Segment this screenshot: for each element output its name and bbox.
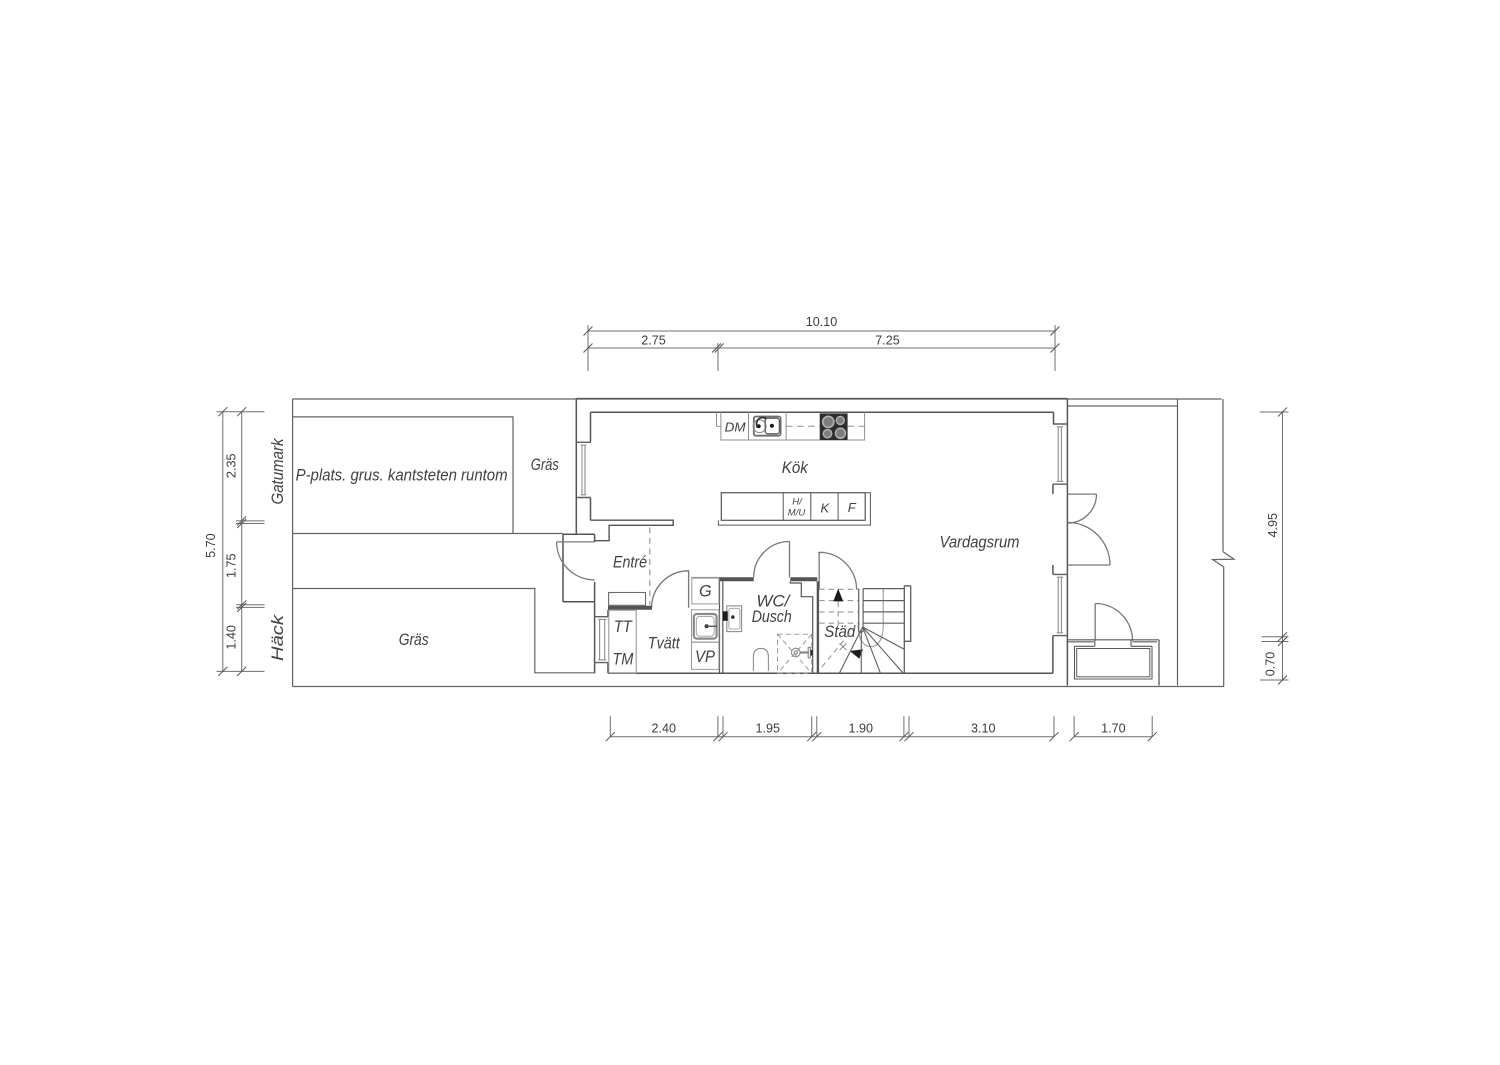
- svg-text:1.90: 1.90: [849, 722, 874, 736]
- svg-text:Gatumark: Gatumark: [269, 438, 287, 505]
- svg-text:K: K: [820, 500, 830, 515]
- svg-text:H/: H/: [792, 497, 803, 508]
- svg-text:DM: DM: [725, 420, 746, 435]
- svg-text:Tvätt: Tvätt: [648, 634, 681, 652]
- svg-text:1.40: 1.40: [224, 625, 238, 650]
- svg-text:5.70: 5.70: [204, 533, 218, 558]
- svg-text:Städ: Städ: [824, 623, 856, 641]
- svg-text:Häck: Häck: [269, 614, 287, 661]
- svg-text:0.70: 0.70: [1263, 652, 1277, 677]
- svg-text:G: G: [699, 583, 712, 601]
- svg-text:7.25: 7.25: [875, 334, 900, 348]
- svg-text:Kök: Kök: [782, 459, 809, 477]
- svg-text:M/U: M/U: [788, 507, 806, 518]
- svg-text:1.70: 1.70: [1101, 722, 1126, 736]
- svg-text:Gräs: Gräs: [399, 631, 429, 649]
- svg-text:4.95: 4.95: [1266, 513, 1280, 538]
- svg-text:2.35: 2.35: [224, 454, 238, 479]
- svg-text:VP: VP: [695, 648, 715, 666]
- svg-text:F: F: [848, 500, 857, 515]
- svg-text:Vardagsrum: Vardagsrum: [940, 534, 1020, 552]
- svg-text:10.10: 10.10: [806, 315, 838, 329]
- svg-text:Dusch: Dusch: [752, 608, 792, 626]
- svg-text:TT: TT: [614, 618, 633, 636]
- svg-text:1.95: 1.95: [756, 722, 781, 736]
- svg-text:2.75: 2.75: [641, 334, 666, 348]
- svg-text:2.40: 2.40: [651, 722, 676, 736]
- svg-text:1.75: 1.75: [224, 554, 238, 579]
- svg-text:TM: TM: [612, 651, 633, 669]
- svg-text:Entré: Entré: [613, 554, 647, 572]
- svg-text:3.10: 3.10: [971, 722, 996, 736]
- svg-text:P-plats. grus. kantsteten runt: P-plats. grus. kantsteten runtom: [296, 466, 508, 484]
- svg-text:Gräs: Gräs: [531, 456, 559, 474]
